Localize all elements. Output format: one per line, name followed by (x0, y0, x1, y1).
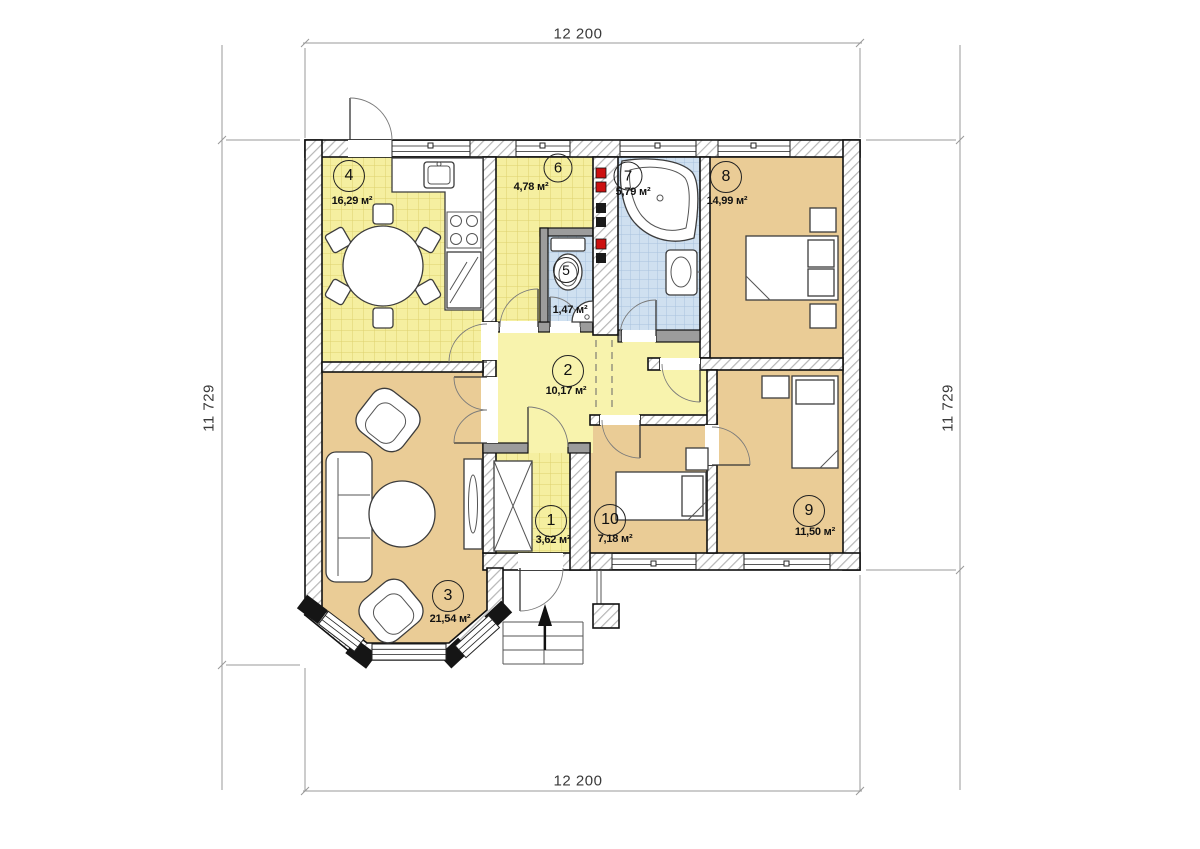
room-area-label-2: 10,17 м² (546, 385, 587, 397)
floor-plan-page: { "dimensions": { "top": "12 200", "bott… (0, 0, 1200, 849)
wc-wall-left (540, 228, 548, 322)
room-area-label-9: 11,50 м² (795, 526, 835, 538)
sofa-symbol (326, 452, 372, 582)
entrance-arrow-icon (538, 604, 552, 650)
door-main-entrance (518, 553, 563, 611)
room-number-badge-1: 1 (535, 505, 567, 537)
bath-wall-south (656, 330, 700, 342)
bay-window-center (372, 644, 446, 660)
room-area-label-10: 7,18 м² (598, 533, 633, 545)
nightstand-symbol (810, 208, 836, 232)
room-area-label-3: 21,54 м² (430, 613, 471, 625)
interior-wall-bedroom10-north (640, 415, 717, 425)
floor-plan-drawing (0, 0, 1200, 849)
interior-wall-main-vertical (483, 157, 496, 322)
room-area-label-7: 5,79 м² (616, 186, 651, 198)
room-area-label-8: 14,99 м² (707, 195, 748, 207)
wardrobe-symbol (494, 461, 532, 551)
room-area-label-1: 3,62 м² (536, 534, 571, 546)
room-number-badge-6: 6 (544, 154, 573, 183)
kitchen-sink-symbol (424, 162, 454, 188)
dimension-right-label: 11 729 (940, 384, 957, 432)
nightstand-symbol (686, 448, 708, 470)
room-number-badge-9: 9 (793, 495, 825, 527)
dimension-bottom-label: 12 200 (554, 773, 603, 790)
exterior-wall-left (305, 140, 322, 615)
window (620, 141, 696, 157)
interior-wall-bedroom8-south (700, 358, 843, 370)
interior-wall-kitchen-living (322, 362, 483, 372)
nightstand-symbol (810, 304, 836, 328)
exterior-wall-right (843, 140, 860, 570)
nightstand-symbol (762, 376, 789, 398)
fridge-symbol (447, 252, 481, 308)
room-area-label-4: 16,29 м² (332, 195, 373, 207)
window (392, 141, 470, 157)
tv-stand-symbol (464, 459, 482, 549)
room-area-label-5: 1,47 м² (553, 304, 588, 316)
window (612, 554, 696, 570)
room-number-badge-2: 2 (552, 355, 584, 387)
hall-floor-east (593, 335, 707, 425)
room-number-badge-8: 8 (710, 161, 742, 193)
dimension-left-label: 11 729 (201, 384, 218, 432)
porch-steps (503, 622, 583, 664)
room-number-badge-10: 10 (594, 504, 626, 536)
washbasin-symbol (666, 250, 700, 295)
door-back-entrance (350, 98, 392, 140)
window (744, 554, 830, 570)
room-number-badge-3: 3 (432, 580, 464, 612)
porch-railing (597, 570, 601, 604)
interior-wall-bath-bedroom8 (700, 157, 710, 358)
interior-wall-bedroom9-left (707, 465, 717, 553)
coffee-table-symbol (369, 481, 435, 547)
porch-column (593, 604, 619, 628)
dimension-top-label: 12 200 (554, 26, 603, 43)
room-number-badge-5: 5 (553, 257, 579, 283)
window (718, 141, 790, 157)
room-area-label-6: 4,78 м² (514, 181, 549, 193)
room-number-badge-4: 4 (333, 160, 365, 192)
interior-wall-vestibule-right (570, 443, 590, 570)
